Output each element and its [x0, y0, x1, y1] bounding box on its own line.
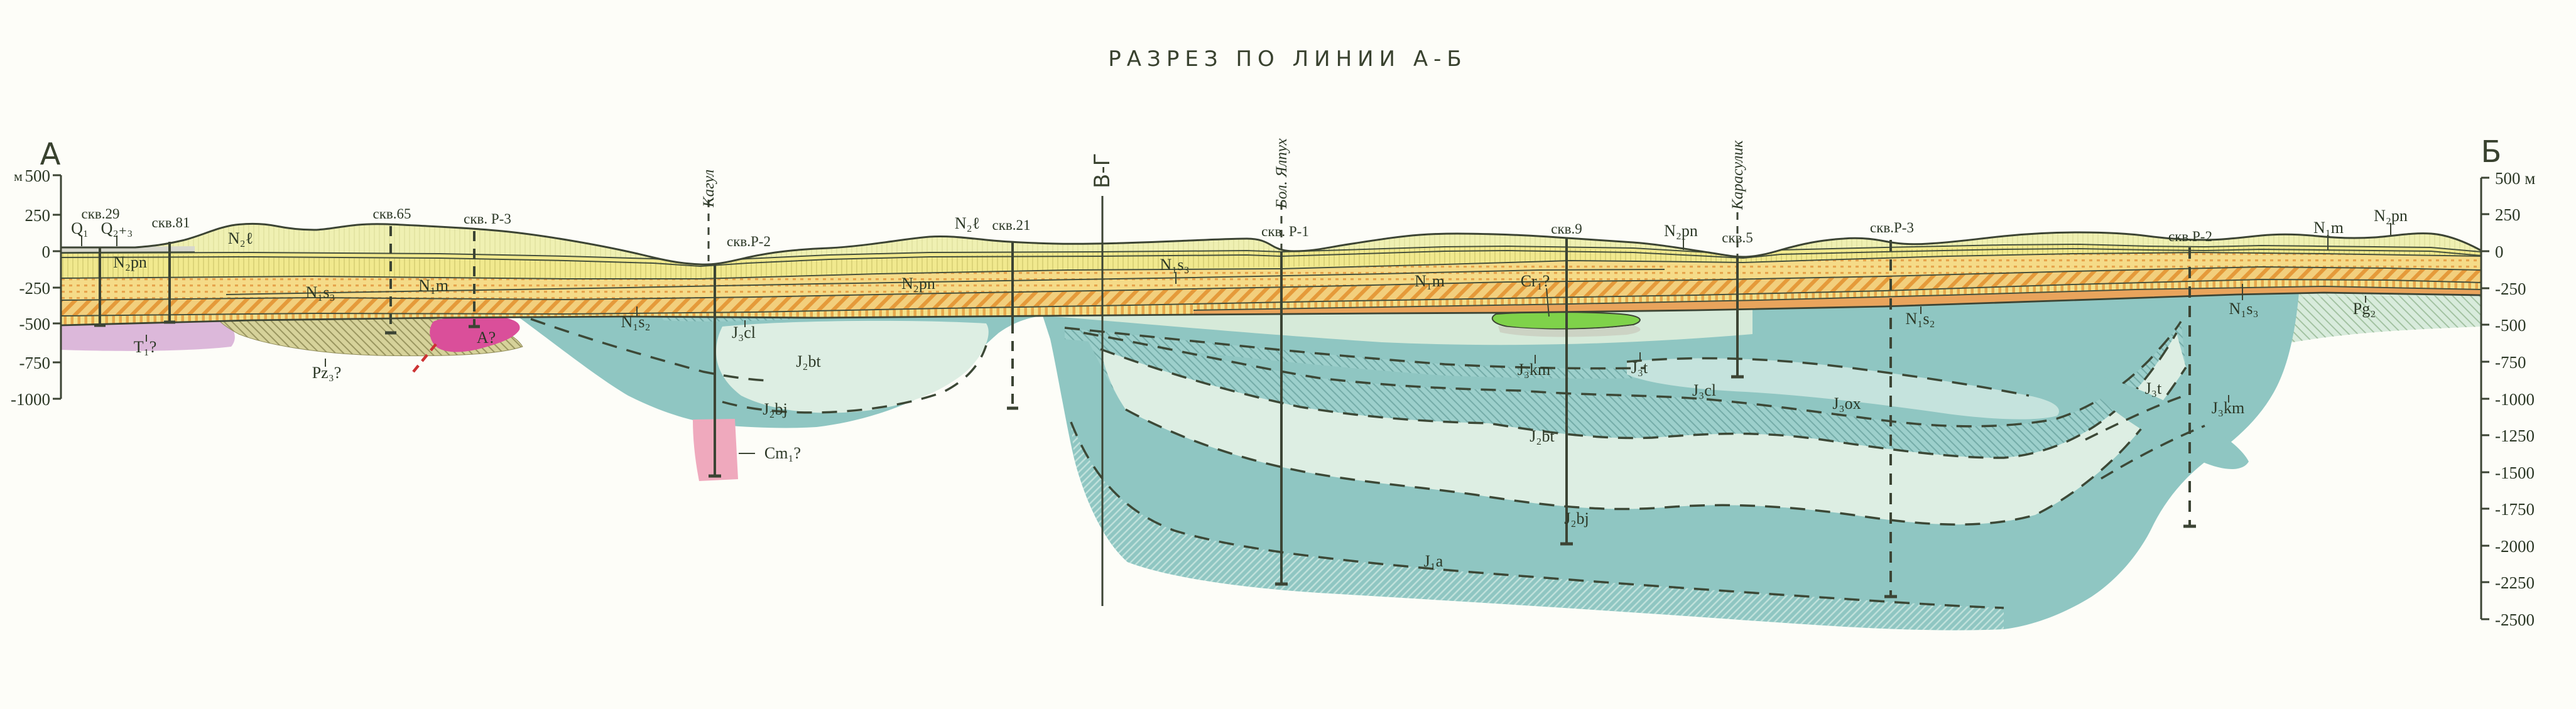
label-j3cl-mid: J₃cl [1692, 381, 1716, 399]
label-n1m-right: N₁m [2313, 219, 2344, 237]
borehole-label-r2a: скв.Р-2 [727, 234, 771, 249]
label-archean: А? [477, 328, 496, 347]
label-n2pn-right: N₂pn [2374, 207, 2408, 225]
label-j3km-mid: J₃km [1518, 360, 1550, 379]
axis-right-tick--250: -250 [2495, 279, 2526, 298]
axis-left-tick--500: -500 [19, 315, 51, 333]
label-j3km-right: J₃km [2212, 399, 2244, 417]
label-n2pn-left: N₂pn [113, 253, 147, 271]
borehole-label-r2b: скв.Р-2 [2168, 229, 2212, 244]
basement-and-jurassic-units [61, 293, 2481, 631]
borehole-label-r1: скв. Р-1 [1261, 224, 1309, 239]
river-karasulik-label: Карасулик [1729, 140, 1746, 210]
label-j3ox: J₃ox [1832, 394, 1861, 413]
label-n2pn-mid: N₂pn [901, 274, 935, 293]
label-pz3: Pz₃? [312, 364, 342, 382]
label-j3t-right: J₃t [2145, 379, 2162, 398]
geological-cross-section: м 500 250 0 -250 -500 -750 -1000 500 м 2… [0, 0, 2576, 709]
label-pg2: Pg₂ [2353, 300, 2376, 318]
label-j2bt-left: J₂bt [796, 352, 821, 371]
axis-right-tick--1500: -1500 [2495, 463, 2535, 482]
label-j2bt-mid: J₂bt [1530, 427, 1555, 445]
axis-left: м 500 250 0 -250 -500 -750 -1000 [11, 166, 61, 409]
section-line-label: В-Г [1090, 153, 1115, 188]
label-n1s3-right: N₁s₃ [2229, 300, 2258, 318]
label-n1m-left: N₁m [418, 276, 448, 295]
axis-left-tick-250: 250 [25, 206, 51, 225]
axis-left-tick--1000: -1000 [11, 390, 50, 409]
axis-left-tick-0: 0 [42, 242, 51, 261]
axis-right-tick-250: 250 [2495, 205, 2521, 224]
axis-right-tick--500: -500 [2495, 316, 2526, 335]
label-j2bj-left: J₂bj [763, 400, 787, 418]
axis-right-tick--2500: -2500 [2495, 610, 2535, 629]
label-n2l-mid: N₂ℓ [955, 214, 980, 232]
borehole-label-5: скв.5 [1722, 230, 1753, 246]
axis-left-tick--250: -250 [19, 279, 51, 298]
borehole-label-r3b: скв.Р-3 [1870, 220, 1914, 235]
label-n1s3-mid: N₁s₃ [1160, 256, 1189, 274]
axis-right-tick-500: 500 м [2495, 169, 2535, 188]
label-n2l-left: N₂ℓ [228, 229, 253, 247]
label-j3cl-left: J₃cl [732, 323, 756, 342]
label-cm1: Cm₁? [764, 444, 801, 462]
endpoint-b: Б [2481, 134, 2502, 170]
left-basin-j2bt-lens [716, 321, 989, 413]
axis-right-tick-0: 0 [2495, 242, 2504, 261]
endpoint-a: А [40, 137, 61, 172]
label-j3t-mid: J₃t [1631, 359, 1648, 377]
river-kagul-label: Кагул [700, 170, 717, 208]
borehole-label-65: скв.65 [373, 206, 411, 222]
section-title: РАЗРЕЗ ПО ЛИНИИ А-Б [1108, 46, 1467, 72]
label-j2bj-mid: J₂bj [1564, 509, 1589, 528]
label-q1: Q₁ [71, 219, 89, 237]
borehole-label-9: скв.9 [1551, 221, 1582, 237]
label-n1s2-left: N₁s₂ [621, 313, 650, 331]
axis-left-tick--750: -750 [19, 354, 51, 372]
borehole-label-21: скв.21 [992, 217, 1031, 233]
axis-right-tick--1750: -1750 [2495, 500, 2535, 519]
axis-right-tick--2000: -2000 [2495, 537, 2535, 556]
axis-right-tick--1000: -1000 [2495, 390, 2535, 409]
label-n1m-mid: N₁m [1415, 272, 1445, 290]
label-n1s3-left: N₁s₃ [305, 283, 335, 301]
axis-right: 500 м 250 0 -250 -500 -750 -1000 -1250 -… [2481, 169, 2535, 629]
label-cr1: Cr₁? [1521, 272, 1550, 290]
label-t1: T₁? [134, 338, 157, 356]
cross-section-canvas: м 500 250 0 -250 -500 -750 -1000 500 м 2… [0, 0, 2576, 709]
label-n2pn-right-mid: N₂pn [1664, 222, 1698, 240]
borehole-label-r3a: скв. Р-3 [464, 211, 511, 227]
label-j1a: J₁a [1424, 552, 1443, 570]
axis-right-tick--2250: -2250 [2495, 573, 2535, 592]
central-basin [1043, 293, 2299, 631]
axis-left-unit: м [14, 168, 23, 184]
borehole-label-81: скв.81 [152, 215, 190, 230]
axis-right-tick--750: -750 [2495, 353, 2526, 372]
axis-right-tick--1250: -1250 [2495, 426, 2535, 445]
river-yalpukh-label: Бол. Ялпух [1273, 138, 1290, 209]
label-n1s2-right: N₁s₂ [1905, 310, 1935, 328]
label-q23: Q₂₊₃ [101, 219, 133, 237]
